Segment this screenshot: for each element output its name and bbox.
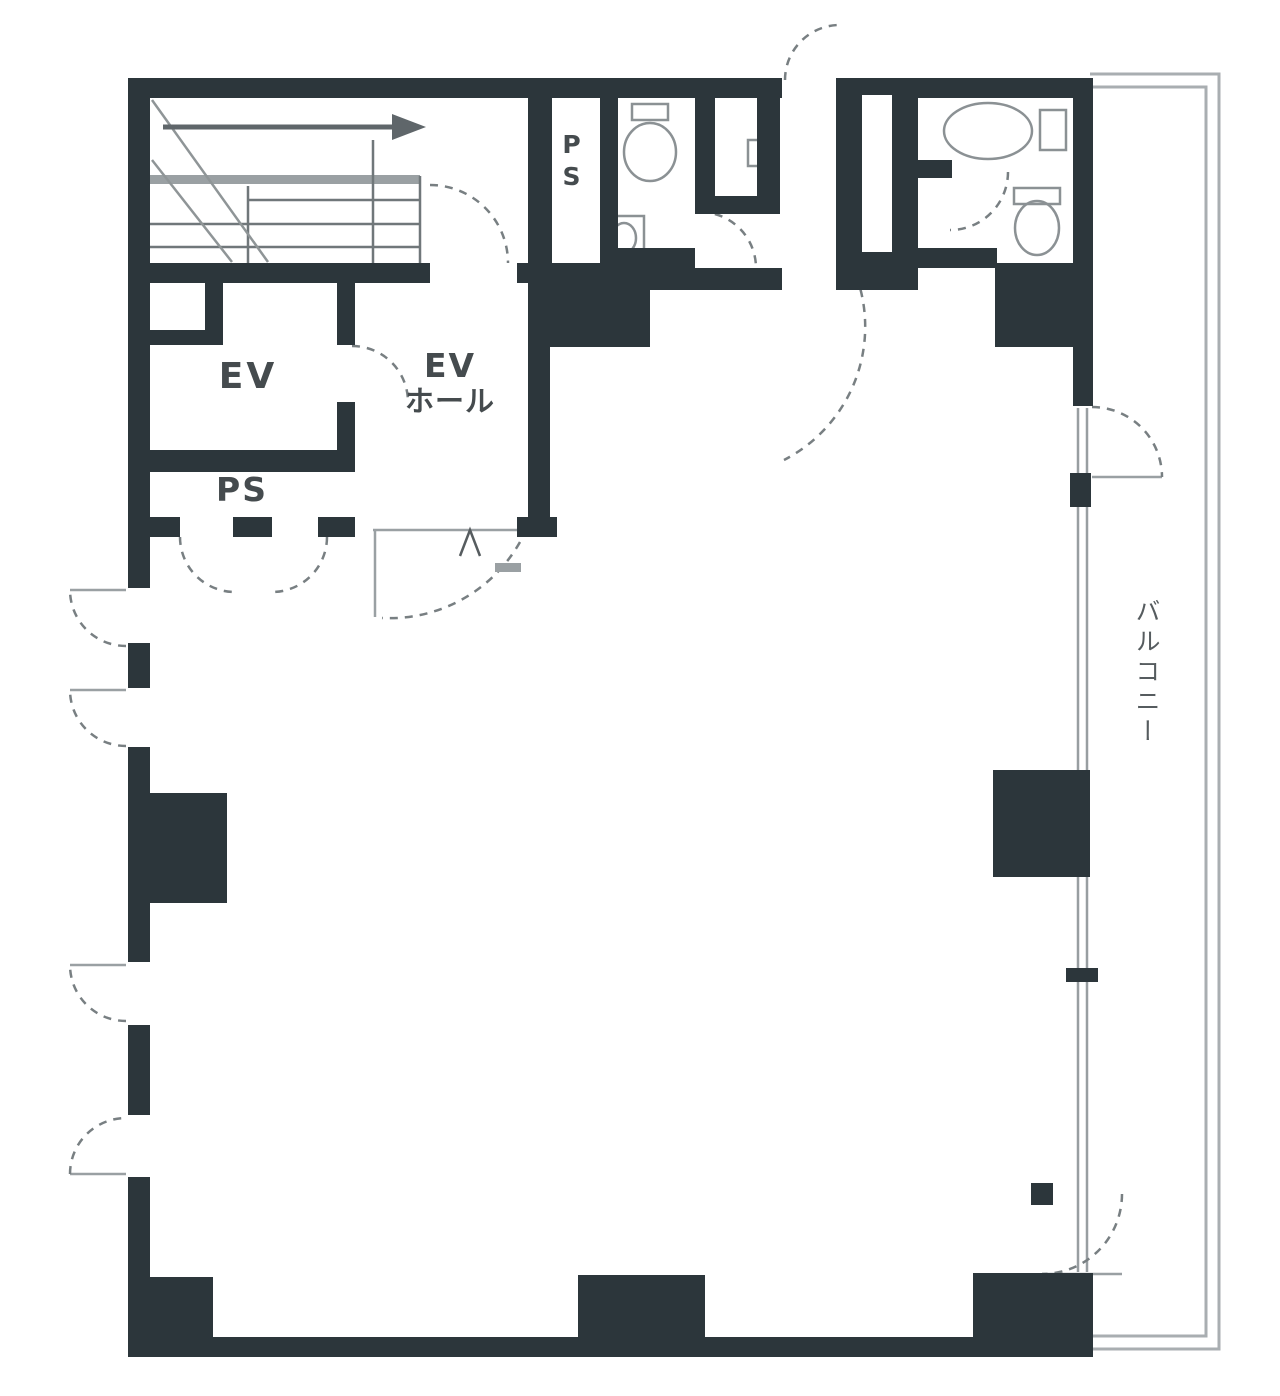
room-label-elevator: EV bbox=[200, 356, 296, 397]
room-label-pipe-shaft-top: PS bbox=[548, 130, 586, 240]
room-label-elevator-hall-line2: ホール bbox=[370, 385, 530, 417]
wall-evhall-corner bbox=[517, 517, 557, 537]
threshold-tick bbox=[495, 563, 521, 572]
wall-stair-bottom bbox=[128, 263, 430, 283]
wall-right bbox=[1073, 78, 1093, 406]
wall-left bbox=[128, 643, 150, 688]
door-hinge-block bbox=[1031, 1183, 1053, 1205]
toilet-bowl-icon bbox=[1015, 201, 1059, 255]
door-swing-arc bbox=[180, 537, 235, 592]
door-swing-arc bbox=[70, 965, 126, 1021]
room-label-pipe-shaft: PS bbox=[196, 470, 288, 509]
pillar bbox=[578, 1275, 705, 1350]
wall-left bbox=[128, 1025, 150, 1115]
pillar bbox=[995, 263, 1083, 347]
door-swing-arc bbox=[950, 172, 1008, 230]
wall-ev-divider bbox=[337, 283, 355, 345]
wall-strip bbox=[647, 268, 782, 290]
door-swing-arc bbox=[70, 1118, 126, 1174]
toilet-tank-icon bbox=[632, 104, 668, 120]
pillar bbox=[973, 1273, 1093, 1353]
wash-basin-icon bbox=[944, 103, 1032, 159]
pillar bbox=[993, 770, 1090, 877]
room-label-elevator-hall: EV ホール bbox=[370, 348, 530, 417]
door-swing-arc bbox=[70, 690, 126, 746]
door-swing-arc bbox=[70, 590, 126, 646]
door-swing-arc bbox=[700, 212, 756, 268]
wall-ps-bottom bbox=[318, 517, 355, 537]
door-swing-arc bbox=[1042, 1194, 1122, 1274]
stairwell bbox=[143, 100, 426, 263]
door-swing-arc bbox=[430, 185, 508, 263]
wall-ps-bottom bbox=[128, 517, 180, 537]
pillar bbox=[540, 263, 650, 347]
wall-left bbox=[128, 78, 150, 588]
pillar bbox=[128, 793, 227, 903]
shaft-void bbox=[862, 95, 892, 252]
room-label-elevator-hall-line1: EV bbox=[370, 348, 530, 385]
wall-top bbox=[128, 78, 782, 98]
pillar bbox=[130, 1277, 213, 1357]
up-direction-arrow-head bbox=[392, 114, 426, 140]
wall-strip bbox=[836, 268, 918, 290]
door-swing-arc bbox=[784, 275, 865, 460]
wall-corridor-left bbox=[757, 98, 780, 214]
door-swing-arc bbox=[1092, 407, 1162, 477]
room-label-balcony: バルコニー bbox=[1118, 598, 1164, 878]
wall-toilet-divider bbox=[695, 88, 715, 212]
wall-ps-bottom bbox=[233, 517, 272, 537]
wall-toilet-block-bottom bbox=[890, 248, 997, 268]
fixtures bbox=[604, 103, 1066, 260]
wall-nook-bottom bbox=[148, 330, 223, 345]
wall-ps-right bbox=[600, 93, 618, 263]
wall-evhall-right bbox=[528, 283, 550, 530]
window-mullion-tick bbox=[1066, 968, 1098, 982]
toilet-bowl-icon bbox=[624, 123, 676, 181]
door-swing-arc bbox=[272, 537, 327, 592]
wall-right-stub bbox=[1070, 473, 1091, 507]
door-swing-arc bbox=[382, 542, 520, 618]
wash-counter-icon bbox=[1040, 110, 1066, 150]
door-stop-mark bbox=[460, 530, 480, 556]
stair-landing-band bbox=[150, 175, 420, 184]
floor-plan: EV EV ホール PS PS バルコニー bbox=[0, 0, 1280, 1396]
door-swing-arc bbox=[785, 25, 838, 80]
wall-ev-bottom bbox=[128, 450, 355, 472]
wall-wc-divider bbox=[918, 160, 952, 178]
wall-ev-divider bbox=[337, 402, 355, 452]
